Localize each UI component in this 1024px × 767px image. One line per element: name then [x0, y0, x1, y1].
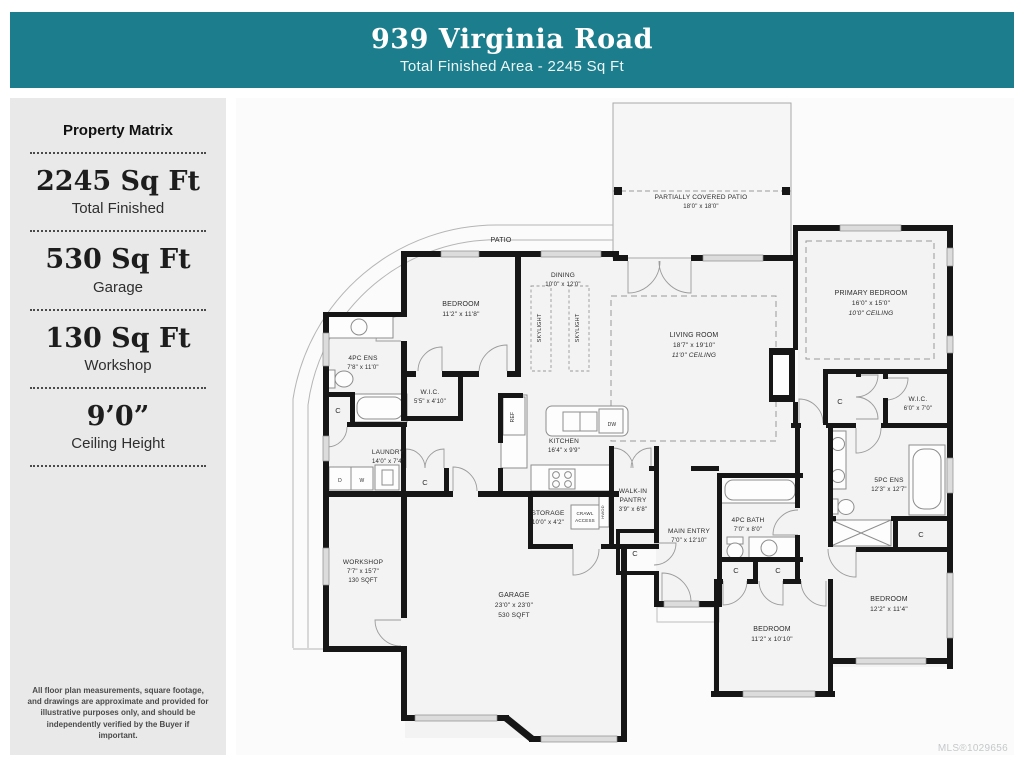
plan-label: C — [837, 397, 843, 406]
toilet-bowl — [727, 543, 743, 559]
partially-covered-patio — [613, 103, 791, 258]
plan-label: BEDROOM — [753, 626, 791, 633]
plan-label: ACCESS — [575, 518, 595, 523]
stat-label: Workshop — [84, 357, 151, 374]
garage-door — [541, 736, 617, 742]
window — [947, 248, 953, 266]
plan-label: 530 SQFT — [498, 612, 530, 619]
garage-door — [415, 715, 497, 721]
plan-label: 23'0" x 23'0" — [495, 602, 534, 609]
window — [541, 251, 601, 257]
sidebar-heading: Property Matrix — [63, 122, 173, 139]
stat-workshop: 130 Sq Ft Workshop — [45, 325, 190, 374]
plan-label: C — [632, 549, 638, 558]
stat-label: Garage — [93, 279, 143, 296]
plan-label: 18'7" x 19'10" — [673, 342, 716, 349]
plan-label: HWOD — [600, 505, 605, 518]
plan-label: 4PC ENS — [348, 355, 378, 362]
plan-label: 16'4" x 9'9" — [548, 448, 580, 454]
dotted-divider — [30, 387, 206, 389]
plan-label: 11'2" x 11'8" — [442, 311, 480, 318]
window — [323, 436, 329, 461]
dotted-divider — [30, 309, 206, 311]
plan-label: 3'9" x 6'8" — [619, 507, 647, 513]
disclaimer-text: All floor plan measurements, square foot… — [10, 685, 226, 741]
sink-basin — [832, 470, 845, 483]
plan-label: KITCHEN — [549, 438, 579, 445]
stat-value: 530 Sq Ft — [45, 246, 190, 274]
stat-ceiling-height: 9’0” Ceiling Height — [71, 403, 164, 452]
plan-label: BEDROOM — [870, 596, 908, 603]
bathtub-basin — [357, 397, 403, 419]
plan-label: PATIO — [491, 237, 512, 244]
plan-label: PANTRY — [620, 497, 647, 504]
stat-total-finished: 2245 Sq Ft Total Finished — [36, 168, 200, 217]
plan-label: W — [360, 478, 365, 484]
plan-label: 5'5" x 4'10" — [414, 399, 446, 405]
plan-label: MAIN ENTRY — [668, 528, 710, 535]
plan-label: 12'2" x 11'4" — [870, 606, 908, 613]
floorplan-sheet: 939 Virginia Road Total Finished Area - … — [0, 0, 1024, 767]
fireplace — [769, 348, 795, 402]
plan-label: W.I.C. — [421, 389, 440, 396]
front-porch — [657, 607, 719, 622]
plan-label: 16'0" x 15'0" — [852, 300, 891, 307]
floorplan-panel: PARTIALLY COVERED PATIO18'0" x 18'0"PATI… — [236, 98, 1014, 755]
plan-label: 12'3" x 12'7" — [871, 487, 907, 493]
plan-label: REF — [510, 412, 516, 423]
plan-label: 11'0" CEILING — [672, 352, 716, 359]
window — [947, 336, 953, 353]
plan-label: W.I.C. — [909, 396, 928, 403]
plan-label: 4PC BATH — [732, 517, 765, 524]
stat-value: 130 Sq Ft — [45, 325, 190, 353]
plan-label: GARAGE — [498, 592, 529, 599]
plan-label: SKYLIGHT — [575, 313, 581, 342]
plan-label: CRAWL — [576, 511, 593, 516]
plan-label: 7'8" x 11'0" — [347, 365, 379, 371]
plan-label: 130 SQFT — [348, 578, 377, 584]
plan-label: SKYLIGHT — [537, 313, 543, 342]
dishwasher — [599, 409, 623, 433]
sink-basin — [761, 540, 777, 556]
dotted-divider — [30, 230, 206, 232]
plan-label: STORAGE — [531, 510, 565, 517]
toilet-bowl — [838, 500, 854, 515]
mls-number: MLS®1029656 — [938, 743, 1008, 754]
plan-label: 7'7" x 15'7" — [347, 569, 379, 575]
patio-post — [782, 187, 790, 195]
plan-label: C — [335, 406, 341, 415]
floorplan-drawing: PARTIALLY COVERED PATIO18'0" x 18'0"PATI… — [236, 98, 1014, 755]
window — [840, 225, 901, 231]
plan-label: 18'0" x 18'0" — [683, 204, 719, 210]
plan-label: 10'0" CEILING — [849, 310, 894, 317]
page-subtitle: Total Finished Area - 2245 Sq Ft — [400, 58, 624, 75]
plan-label: PRIMARY BEDROOM — [835, 290, 908, 297]
stat-garage: 530 Sq Ft Garage — [45, 246, 190, 295]
plan-label: PARTIALLY COVERED PATIO — [655, 194, 748, 201]
front-door — [664, 601, 699, 607]
toilet-bowl — [335, 371, 353, 387]
plan-label: D — [338, 478, 342, 484]
window — [441, 251, 479, 257]
window — [947, 573, 953, 638]
property-matrix-sidebar: Property Matrix 2245 Sq Ft Total Finishe… — [10, 98, 226, 755]
plan-label: 11'2" x 10'10" — [751, 636, 793, 643]
patio-post — [614, 187, 622, 195]
window — [743, 691, 815, 697]
plan-label: C — [918, 530, 924, 539]
window — [323, 333, 329, 366]
dotted-divider — [30, 465, 206, 467]
window — [856, 658, 926, 664]
plan-label: 10'0" x 12'0" — [545, 282, 581, 288]
laundry-sink — [382, 470, 393, 485]
plan-label: 5PC ENS — [874, 477, 904, 484]
plan-label: DINING — [551, 272, 575, 279]
dotted-divider — [30, 152, 206, 154]
bathtub-basin — [913, 449, 941, 509]
plan-label: WORKSHOP — [343, 559, 383, 566]
stat-label: Total Finished — [72, 200, 165, 217]
window — [947, 458, 953, 493]
plan-label: C — [733, 566, 739, 575]
crawl-access-hatch — [571, 505, 599, 529]
stat-label: Ceiling Height — [71, 435, 164, 452]
plan-label: 10'0" x 4'2" — [532, 520, 564, 526]
window — [703, 255, 763, 261]
plan-label: LIVING ROOM — [670, 332, 719, 339]
plan-label: 7'0" x 8'0" — [734, 527, 762, 533]
window — [323, 548, 329, 585]
plan-label: C — [775, 566, 781, 575]
plan-label: WALK-IN — [619, 488, 647, 495]
header-banner: 939 Virginia Road Total Finished Area - … — [10, 12, 1014, 88]
sink-basin — [832, 438, 845, 451]
plan-label: 6'0" x 7'0" — [904, 406, 932, 412]
bathtub-basin — [725, 480, 795, 500]
plan-label: LAUNDRY — [372, 449, 405, 456]
stat-value: 2245 Sq Ft — [36, 168, 200, 196]
sink-basin — [351, 319, 367, 335]
plan-label: 14'0" x 7'4" — [372, 459, 404, 465]
plan-label: 7'0" x 12'10" — [671, 538, 707, 544]
page-title: 939 Virginia Road — [371, 25, 653, 55]
plan-label: BEDROOM — [442, 301, 480, 308]
stat-value: 9’0” — [87, 403, 150, 431]
plan-label: C — [422, 478, 428, 487]
plan-label: DW — [608, 422, 617, 428]
